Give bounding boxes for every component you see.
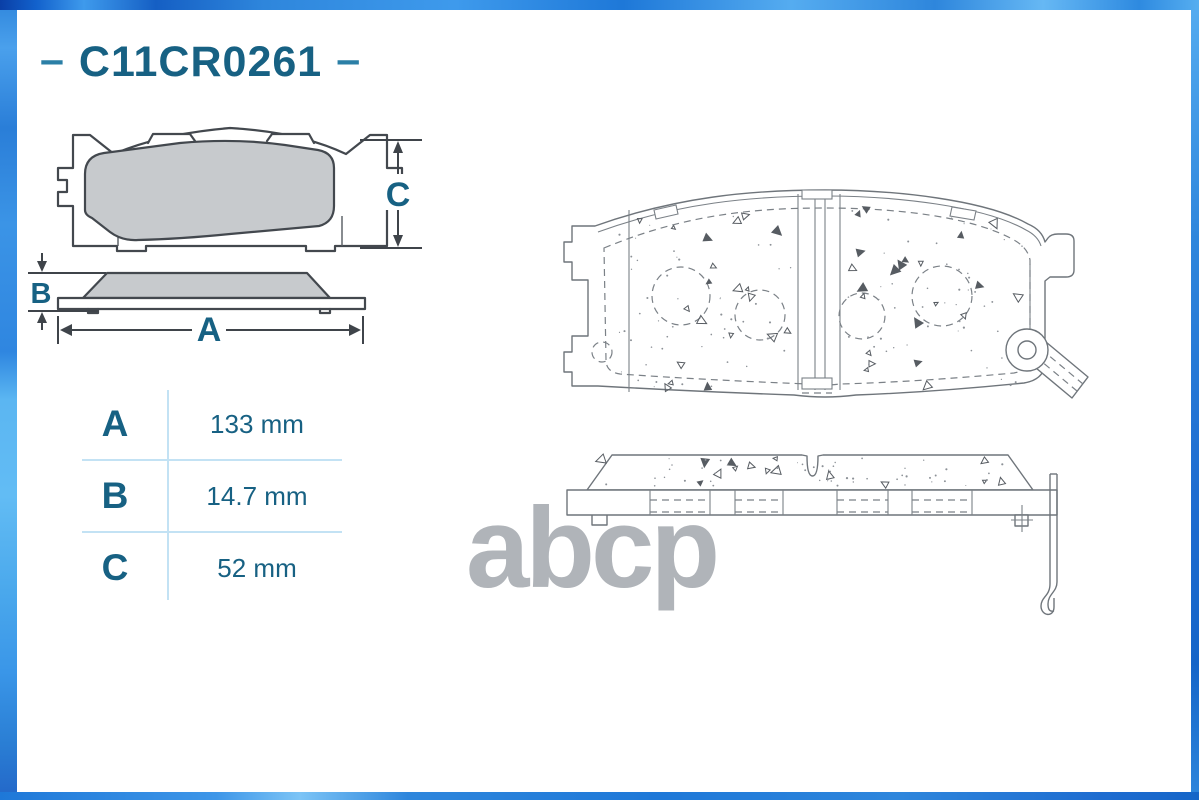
table-value-b: 14.7 mm [168,481,346,512]
dimension-c-label: C [386,176,411,214]
frame-left-band [0,0,17,800]
friction-pad-side [83,273,330,298]
dimension-table: A 133 mm B 14.7 mm C 52 mm [62,388,346,604]
side-view-drawing: B A [20,248,422,360]
table-value-c: 52 mm [168,553,346,584]
tab-hole [1018,341,1036,359]
table-row: B 14.7 mm [62,460,346,532]
part-number-dash-left: – [40,36,65,85]
slot-top-cap [802,190,832,199]
table-row: C 52 mm [62,532,346,604]
side-view-technical-drawing [556,444,1096,630]
dimension-a-label: A [197,311,222,349]
front-view-drawing: C [30,112,432,258]
part-number-header: – C11CR0261 – [40,38,361,87]
frame-right-band [1191,0,1199,800]
backing-plate-side [58,298,365,309]
table-value-a: 133 mm [168,409,346,440]
table-row: A 133 mm [62,388,346,460]
backing-plate-strip [567,490,1057,515]
catalog-part-image: – C11CR0261 – C B A A 133 mm [0,0,1199,800]
frame-bottom-band [0,792,1199,800]
top-view-technical-drawing [556,184,1096,418]
frame-top-band [0,0,1199,10]
table-vertical-line [167,390,169,600]
table-label-a: A [62,403,168,445]
plate-lug-left [592,515,607,525]
friction-strip [587,455,1033,490]
table-label-c: C [62,547,168,589]
wear-indicator-tab [1006,329,1088,398]
table-horizontal-line-2 [82,531,342,533]
part-number: C11CR0261 [79,38,322,87]
dimension-b-label: B [31,278,52,310]
part-number-dash-right: – [336,36,361,85]
friction-pad [85,141,334,240]
table-label-b: B [62,475,168,517]
slot-bottom-cap [802,378,832,389]
table-horizontal-line-1 [82,459,342,461]
